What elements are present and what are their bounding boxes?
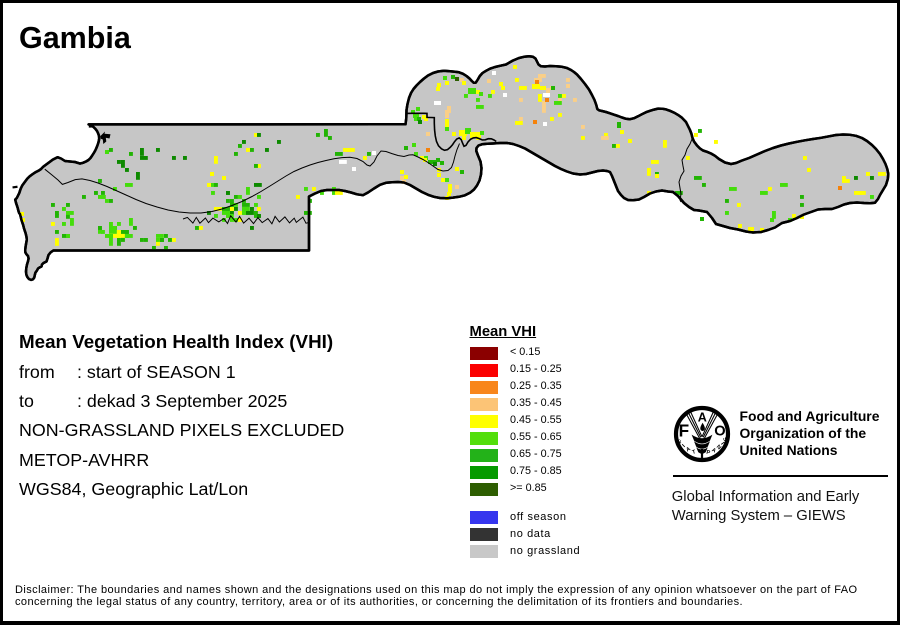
- svg-text:A: A: [697, 410, 706, 424]
- svg-text:P: P: [705, 450, 710, 457]
- svg-text:F: F: [678, 421, 689, 441]
- svg-text:T: T: [691, 449, 696, 456]
